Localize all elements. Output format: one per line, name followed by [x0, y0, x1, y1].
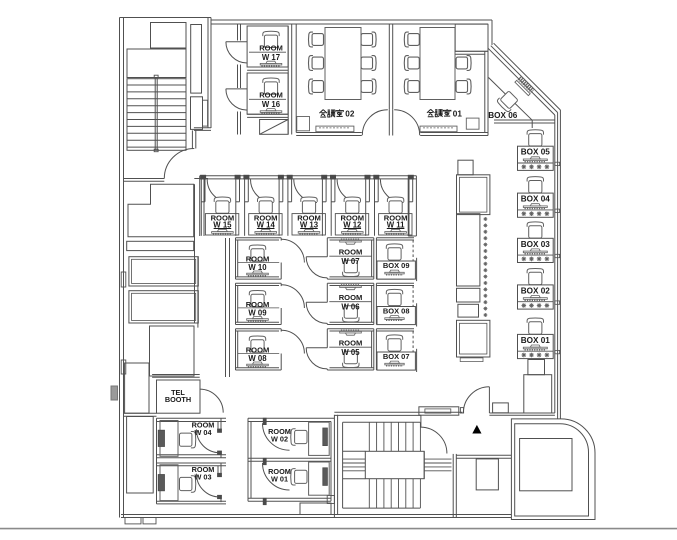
svg-text:BOX 02: BOX 02: [521, 286, 551, 295]
svg-text:W 07: W 07: [341, 257, 359, 266]
svg-text:BOX 06: BOX 06: [488, 111, 518, 120]
svg-text:W 02: W 02: [271, 434, 288, 443]
svg-text:BOOTH: BOOTH: [165, 395, 191, 404]
svg-text:W 01: W 01: [271, 474, 288, 483]
svg-text:W 05: W 05: [341, 348, 360, 357]
svg-text:BOX 03: BOX 03: [521, 240, 551, 249]
svg-text:W 09: W 09: [248, 308, 267, 317]
svg-text:ROOM: ROOM: [259, 90, 283, 99]
svg-text:BOX 07: BOX 07: [383, 352, 410, 361]
svg-text:W 08: W 08: [248, 354, 267, 363]
svg-text:ROOM: ROOM: [339, 293, 363, 302]
svg-text:ROOM: ROOM: [339, 338, 363, 347]
svg-text:BOX 01: BOX 01: [521, 336, 551, 345]
svg-text:BOX 04: BOX 04: [521, 195, 551, 204]
svg-text:W 10: W 10: [248, 263, 267, 272]
svg-text:BOX 05: BOX 05: [521, 148, 551, 157]
svg-text:01: 01: [453, 109, 463, 118]
svg-text:W 16: W 16: [262, 100, 281, 109]
svg-text:W 17: W 17: [262, 53, 280, 62]
svg-text:ROOM: ROOM: [259, 44, 283, 53]
svg-text:BOX 09: BOX 09: [383, 261, 410, 270]
svg-text:W 06: W 06: [341, 303, 360, 312]
svg-text:02: 02: [345, 110, 355, 119]
svg-text:ROOM: ROOM: [339, 247, 363, 256]
svg-text:BOX 08: BOX 08: [383, 307, 410, 316]
